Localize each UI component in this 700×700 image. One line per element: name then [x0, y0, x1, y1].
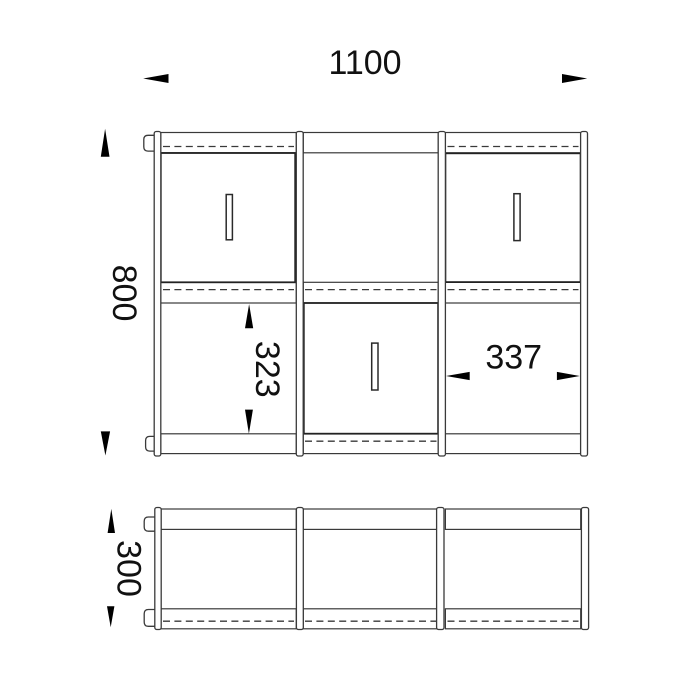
svg-text:300: 300 — [110, 540, 148, 597]
svg-text:1100: 1100 — [328, 44, 401, 82]
svg-text:337: 337 — [485, 339, 542, 377]
svg-text:323: 323 — [248, 341, 286, 398]
svg-text:800: 800 — [105, 265, 143, 322]
